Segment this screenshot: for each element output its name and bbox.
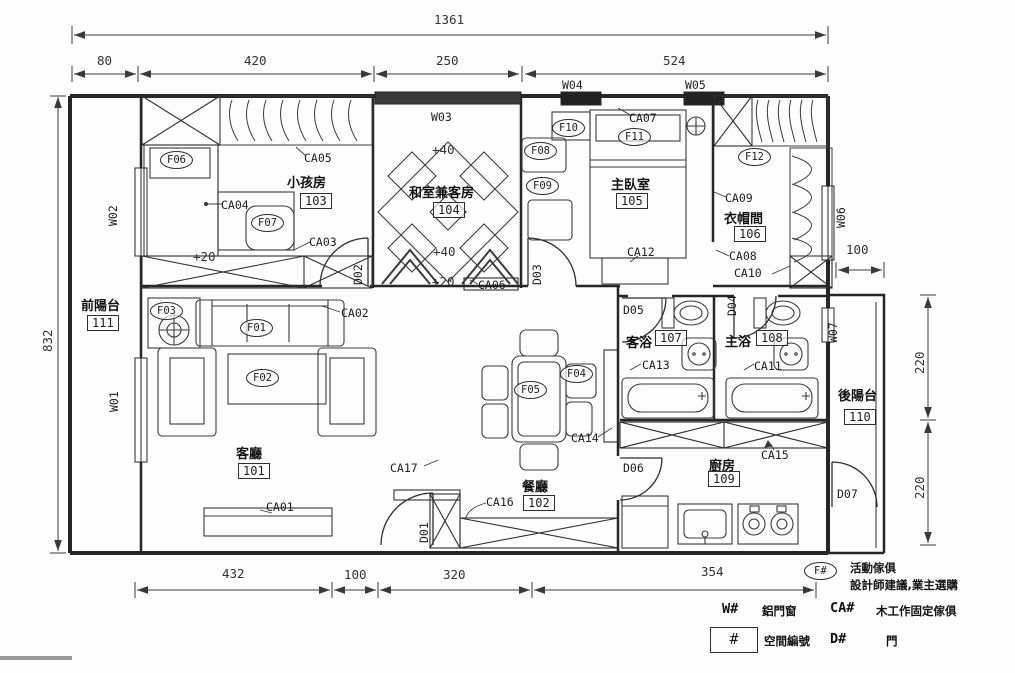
dim-bottom-100: 100 <box>344 567 367 582</box>
room-no-110: 110 <box>844 409 876 425</box>
furniture-tag-f01: F01 <box>240 319 273 337</box>
window-label-w04: W04 <box>562 78 583 92</box>
cabinet-label-ca12: CA12 <box>627 245 655 259</box>
furniture-tag-f08: F08 <box>524 142 557 160</box>
room-name-dining: 餐廳 <box>522 476 548 495</box>
level-mark-tatami-edge: +20 <box>432 274 455 289</box>
legend-text-movable-2: 設計師建議,業主選購 <box>850 577 958 593</box>
cabinet-label-ca08: CA08 <box>729 249 757 263</box>
door-label-d07: D07 <box>837 487 858 501</box>
cabinet-label-ca11: CA11 <box>754 359 782 373</box>
dim-top-80: 80 <box>97 53 112 68</box>
room-no-105: 105 <box>616 193 648 209</box>
cabinet-label-ca14: CA14 <box>571 431 599 445</box>
cabinet-label-ca06: CA06 <box>478 278 506 292</box>
legend-symbol-space: # <box>710 627 758 653</box>
door-label-d02: D02 <box>351 264 365 285</box>
room-no-101: 101 <box>238 463 270 479</box>
legend-symbol-d: D# <box>830 631 846 647</box>
room-no-104: 104 <box>433 202 465 218</box>
dim-top-420: 420 <box>244 53 267 68</box>
cabinet-label-ca01: CA01 <box>266 500 294 514</box>
furniture-tag-f10: F10 <box>552 119 585 137</box>
dim-right-220-upper: 220 <box>912 351 927 374</box>
room-name-living: 客廳 <box>236 443 262 462</box>
furniture-tag-f06: F06 <box>160 151 193 169</box>
cabinet-label-ca10: CA10 <box>734 266 762 280</box>
dim-right-100: 100 <box>846 242 869 257</box>
cabinet-label-ca16: CA16 <box>486 495 514 509</box>
legend-text-movable-1: 活動傢俱 <box>850 560 896 576</box>
door-label-d03: D03 <box>530 264 544 285</box>
cabinet-label-ca03: CA03 <box>309 235 337 249</box>
furniture-tag-f05: F05 <box>514 381 547 399</box>
window-label-w03: W03 <box>431 110 452 124</box>
cabinet-label-ca17: CA17 <box>390 461 418 475</box>
furniture-tag-f04: F04 <box>560 365 593 383</box>
door-label-d06: D06 <box>623 461 644 475</box>
room-name-guest-bath: 客浴 <box>626 332 652 351</box>
level-mark-kids: +20 <box>193 249 216 264</box>
level-mark-tatami-mid: +40 <box>433 244 456 259</box>
furniture-tag-f12: F12 <box>738 148 771 166</box>
dim-bottom-320: 320 <box>443 567 466 582</box>
legend-symbol-ca: CA# <box>830 600 854 616</box>
room-name-master: 主臥室 <box>611 174 650 193</box>
room-name-tatami: 和室兼客房 <box>409 182 474 201</box>
dim-bottom-354: 354 <box>701 564 724 579</box>
furniture-tag-f03: F03 <box>150 302 183 320</box>
window-symbols <box>135 92 834 462</box>
furniture-tag-f07: F07 <box>251 214 284 232</box>
room-name-closet: 衣帽間 <box>724 208 763 227</box>
door-swings <box>320 238 877 545</box>
legend-text-space: 空間編號 <box>764 633 810 649</box>
window-label-w05: W05 <box>685 78 706 92</box>
furniture-tag-f09: F09 <box>526 177 559 195</box>
cabinet-label-ca04: CA04 <box>221 198 249 212</box>
legend-symbol-w: W# <box>722 601 738 617</box>
room-no-109: 109 <box>708 471 740 487</box>
scan-artifact <box>0 656 72 660</box>
legend-text-fixed: 木工作固定傢俱 <box>876 603 957 619</box>
room-no-103: 103 <box>300 193 332 209</box>
cabinet-label-ca15: CA15 <box>761 448 789 462</box>
room-no-106: 106 <box>734 226 766 242</box>
window-label-w07: W07 <box>826 322 840 343</box>
furniture-tag-f11: F11 <box>618 128 651 146</box>
dim-total-width: 1361 <box>434 12 464 27</box>
room-name-front-balcony: 前陽台 <box>81 295 120 314</box>
room-name-kids: 小孩房 <box>287 172 326 191</box>
floor-plan: 1361 80 420 250 524 832 100 220 220 432 … <box>0 0 1015 673</box>
dim-top-250: 250 <box>436 53 459 68</box>
door-label-d04: D04 <box>725 295 739 316</box>
window-label-w02: W02 <box>106 205 120 226</box>
dim-right-220-lower: 220 <box>912 476 927 499</box>
window-label-w06: W06 <box>834 207 848 228</box>
door-label-d01: D01 <box>417 522 431 543</box>
room-name-rear-balcony: 後陽台 <box>838 385 877 404</box>
door-label-d05: D05 <box>623 303 644 317</box>
room-no-102: 102 <box>523 495 555 511</box>
furniture-tag-f02: F02 <box>246 369 279 387</box>
cabinet-label-ca09: CA09 <box>725 191 753 205</box>
legend-symbol-f: F# <box>804 562 837 580</box>
cabinet-label-ca13: CA13 <box>642 358 670 372</box>
level-mark-tatami-top: +40 <box>432 142 455 157</box>
legend-text-window: 鋁門窗 <box>762 603 797 619</box>
window-label-w01: W01 <box>107 391 121 412</box>
dim-top-524: 524 <box>663 53 686 68</box>
dim-left-832: 832 <box>40 329 55 352</box>
dim-bottom-432: 432 <box>222 566 245 581</box>
cabinet-label-ca05: CA05 <box>304 151 332 165</box>
room-no-107: 107 <box>655 330 687 346</box>
cabinet-label-ca02: CA02 <box>341 306 369 320</box>
legend-text-door: 門 <box>886 633 898 649</box>
room-name-master-bath: 主浴 <box>725 331 751 350</box>
room-no-108: 108 <box>756 330 788 346</box>
cabinet-label-ca07: CA07 <box>629 111 657 125</box>
room-no-111: 111 <box>87 315 119 331</box>
